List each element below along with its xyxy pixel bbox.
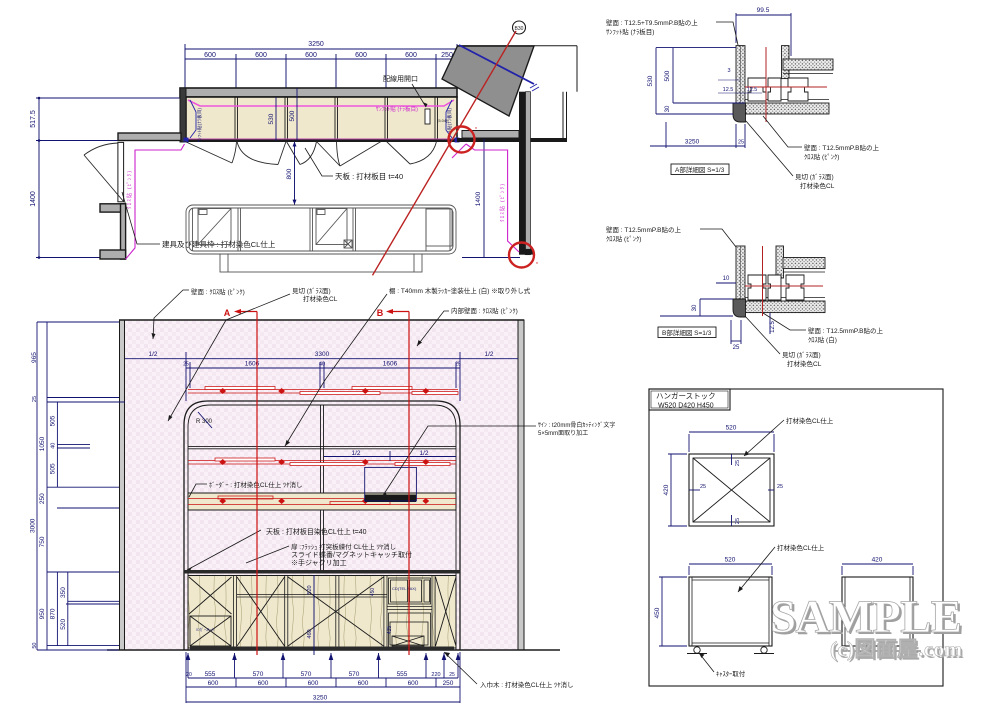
svg-text:600: 600 (258, 680, 269, 687)
svg-text:750: 750 (39, 536, 46, 547)
svg-text:3: 3 (727, 68, 730, 74)
svg-text:配線用開口: 配線用開口 (383, 74, 418, 83)
svg-text:見切 (ｶﾞﾗｽ面): 見切 (ｶﾞﾗｽ面) (782, 351, 821, 359)
svg-text:25: 25 (32, 396, 38, 402)
svg-text:B: B (377, 308, 384, 318)
svg-text:530: 530 (647, 75, 654, 86)
svg-text:3000: 3000 (30, 518, 37, 533)
svg-text:25: 25 (733, 345, 740, 351)
svg-text:600: 600 (358, 680, 369, 687)
svg-text:520: 520 (726, 425, 737, 432)
svg-text:25: 25 (735, 460, 741, 466)
svg-text:A: A (224, 308, 231, 318)
svg-text:3300: 3300 (315, 351, 330, 358)
svg-text:1400: 1400 (475, 191, 482, 206)
svg-text:3250: 3250 (313, 695, 328, 702)
svg-text:570: 570 (301, 671, 312, 678)
svg-text:壁面 : T12.5mmP.B貼の上: 壁面 : T12.5mmP.B貼の上 (808, 326, 884, 335)
svg-text:ｸﾛｽ貼 (ﾋﾟﾝｸ): ｸﾛｽ貼 (ﾋﾟﾝｸ) (499, 184, 506, 222)
svg-text:505: 505 (50, 463, 57, 474)
svg-text:打材染色CL: 打材染色CL (303, 294, 338, 303)
svg-text:600: 600 (355, 52, 367, 59)
svg-text:ﾎﾞｰﾀﾞｰ : 打材染色CL仕上 ﾂﾔ消し: ﾎﾞｰﾀﾞｰ : 打材染色CL仕上 ﾂﾔ消し (209, 480, 303, 489)
svg-text:50: 50 (32, 643, 38, 649)
svg-text:420: 420 (872, 557, 883, 564)
svg-text:1/2: 1/2 (419, 450, 428, 457)
svg-text:530: 530 (268, 113, 275, 124)
svg-text:570: 570 (349, 671, 360, 678)
svg-text:600: 600 (308, 680, 319, 687)
svg-text:25: 25 (455, 362, 461, 368)
svg-text:1/2: 1/2 (351, 450, 360, 457)
svg-text:打材染色CL: 打材染色CL (800, 181, 835, 190)
svg-text:ｸﾛｽ貼 (ﾋﾟﾝｸ): ｸﾛｽ貼 (ﾋﾟﾝｸ) (606, 234, 641, 243)
svg-text:W520 D420 H450: W520 D420 H450 (658, 403, 714, 410)
svg-text:450: 450 (370, 588, 376, 597)
svg-text:B部詳細図 S=1/3: B部詳細図 S=1/3 (662, 328, 712, 337)
svg-text:600: 600 (305, 52, 317, 59)
svg-text:3250: 3250 (685, 139, 700, 146)
svg-text:600: 600 (204, 52, 216, 59)
svg-text:ｸﾛｽ貼 (ﾋﾟﾝｸ): ｸﾛｽ貼 (ﾋﾟﾝｸ) (804, 152, 839, 161)
svg-text:壁面 : T12.5mmP.B貼の上: 壁面 : T12.5mmP.B貼の上 (606, 225, 682, 234)
svg-text:600: 600 (405, 52, 417, 59)
svg-text:(c)図面屋.com: (c)図面屋.com (830, 637, 963, 661)
svg-text:壁面 : ｸﾛｽ貼 (ﾋﾟﾝｸ): 壁面 : ｸﾛｽ貼 (ﾋﾟﾝｸ) (191, 287, 245, 296)
svg-text:600: 600 (408, 680, 419, 687)
svg-text:800: 800 (286, 168, 293, 179)
svg-text:517.5: 517.5 (30, 110, 37, 128)
svg-text:5×5mm面取り加工: 5×5mm面取り加工 (538, 429, 588, 437)
svg-text:ｻﾝﾌｯﾄ貼(ﾅﾗ板目): ｻﾝﾌｯﾄ貼(ﾅﾗ板目) (196, 108, 203, 143)
svg-text:30: 30 (665, 105, 671, 112)
svg-text:※手ジャクリ加工: ※手ジャクリ加工 (291, 558, 347, 567)
svg-text:99.5: 99.5 (757, 7, 770, 14)
svg-text:A部詳細図 S=1/3: A部詳細図 S=1/3 (675, 165, 725, 174)
svg-text:10: 10 (723, 276, 730, 282)
svg-text:250: 250 (39, 493, 46, 504)
svg-text:25: 25 (738, 140, 744, 146)
svg-text:建具及び建具枠 : 打材染色CL仕上: 建具及び建具枠 : 打材染色CL仕上 (162, 239, 276, 249)
svg-text:1400: 1400 (30, 191, 37, 207)
svg-text:ﾊﾝｶﾞｰｽﾄｯｸ: ﾊﾝｶﾞｰｽﾄｯｸ (196, 626, 214, 632)
svg-text:天板 : 打材板目染色CL仕上 t=40: 天板 : 打材板目染色CL仕上 t=40 (266, 527, 367, 536)
svg-text:ｻﾝﾌｯﾄ貼 (ﾅﾗ板目): ｻﾝﾌｯﾄ貼 (ﾅﾗ板目) (606, 27, 654, 36)
svg-text:壁面 : T12.5+T9.5mmP.B貼の上: 壁面 : T12.5+T9.5mmP.B貼の上 (606, 18, 698, 27)
svg-text:600: 600 (255, 52, 267, 59)
svg-text:3250: 3250 (308, 41, 324, 48)
svg-text:25: 25 (700, 484, 706, 490)
svg-text:見切 (ｶﾞﾗｽ面): 見切 (ｶﾞﾗｽ面) (795, 173, 834, 181)
svg-text:12.5: 12.5 (770, 321, 776, 333)
svg-text:40: 40 (319, 362, 325, 368)
svg-text:20: 20 (186, 672, 192, 678)
svg-text:SAMPLE: SAMPLE (770, 591, 962, 643)
svg-text:扉 :ﾌﾗｯｼｭ 打突板練付 CL仕上 ﾂﾔ消し: 扉 :ﾌﾗｯｼｭ 打突板練付 CL仕上 ﾂﾔ消し (291, 542, 396, 551)
svg-text:打材染色CL仕上: 打材染色CL仕上 (786, 416, 834, 425)
svg-text:520: 520 (307, 585, 313, 594)
svg-text:内部壁面 : ｸﾛｽ貼 (ﾋﾟﾝｸ): 内部壁面 : ｸﾛｽ貼 (ﾋﾟﾝｸ) (451, 306, 518, 315)
svg-text:25: 25 (449, 672, 455, 678)
svg-text:(5.04): (5.04) (437, 118, 448, 123)
svg-text:500: 500 (289, 110, 296, 121)
svg-text:520: 520 (725, 557, 736, 564)
svg-text:*: * (536, 262, 538, 268)
svg-text:25: 25 (777, 484, 783, 490)
svg-text:250: 250 (443, 680, 454, 687)
svg-text:1050: 1050 (39, 436, 46, 451)
svg-text:40: 40 (51, 443, 57, 449)
svg-text:220: 220 (431, 672, 440, 678)
svg-text:12.5: 12.5 (723, 87, 734, 93)
svg-text:入巾木 : 打材染色CL仕上 ﾂﾔ消し: 入巾木 : 打材染色CL仕上 ﾂﾔ消し (480, 680, 574, 689)
svg-text:870: 870 (50, 608, 57, 619)
svg-text:460: 460 (307, 629, 313, 638)
svg-text:ｻｲﾝ : t20mm骨白ｶｯﾃｨﾝｸﾞ文字: ｻｲﾝ : t20mm骨白ｶｯﾃｨﾝｸﾞ文字 (538, 421, 615, 429)
svg-text:見切 (ｶﾞﾗｽ面): 見切 (ｶﾞﾗｽ面) (292, 287, 331, 295)
svg-text:555: 555 (397, 671, 408, 678)
svg-text:12.5: 12.5 (747, 87, 758, 93)
svg-text:1606: 1606 (383, 361, 398, 368)
svg-text:505: 505 (50, 415, 57, 426)
svg-text:555: 555 (205, 671, 216, 678)
svg-text:30: 30 (692, 304, 698, 311)
svg-text:ハンガーストック: ハンガーストック (656, 391, 716, 401)
svg-text:スライド蝶番/マグネットキャッチ取付: スライド蝶番/マグネットキャッチ取付 (291, 550, 412, 559)
svg-text:ｻﾝﾌｯﾄ貼 (ﾅﾗ板目): ｻﾝﾌｯﾄ貼 (ﾅﾗ板目) (376, 105, 418, 113)
svg-text:*: * (475, 127, 477, 133)
svg-text:350: 350 (60, 587, 67, 598)
svg-text:570: 570 (253, 671, 264, 678)
svg-text:棚 : T40mm 木製ﾗｯｶｰ塗装仕上 (白) ※取り外し: 棚 : T40mm 木製ﾗｯｶｰ塗装仕上 (白) ※取り外し式 (389, 286, 531, 295)
svg-text:425: 425 (387, 626, 393, 635)
svg-text:520: 520 (60, 618, 67, 629)
svg-text:950: 950 (39, 608, 46, 619)
svg-text:1/2: 1/2 (484, 351, 493, 358)
svg-text:420: 420 (663, 484, 670, 495)
svg-text:天板 : 打材板目 t=40: 天板 : 打材板目 t=40 (335, 171, 403, 181)
svg-text:CD(TEL FAX): CD(TEL FAX) (392, 586, 417, 591)
svg-text:600: 600 (208, 680, 219, 687)
svg-text:ｸﾛｽ貼 (白): ｸﾛｽ貼 (白) (808, 335, 837, 344)
svg-text:打材染色CL: 打材染色CL (787, 359, 822, 368)
svg-text:1/2: 1/2 (148, 351, 157, 358)
svg-text:壁面 : T12.5mmP.B貼の上: 壁面 : T12.5mmP.B貼の上 (804, 143, 880, 152)
svg-text:450: 450 (654, 607, 661, 618)
svg-text:965: 965 (31, 352, 38, 363)
svg-text:25: 25 (183, 362, 189, 368)
svg-text:打材染色CL仕上: 打材染色CL仕上 (777, 543, 825, 552)
svg-text:500: 500 (664, 70, 671, 81)
svg-text:ｸﾛｽ貼 (ﾋﾟﾝｸ): ｸﾛｽ貼 (ﾋﾟﾝｸ) (126, 171, 133, 209)
svg-text:25: 25 (735, 518, 741, 524)
svg-text:ｷｬｽﾀｰ取付: ｷｬｽﾀｰ取付 (716, 669, 746, 678)
